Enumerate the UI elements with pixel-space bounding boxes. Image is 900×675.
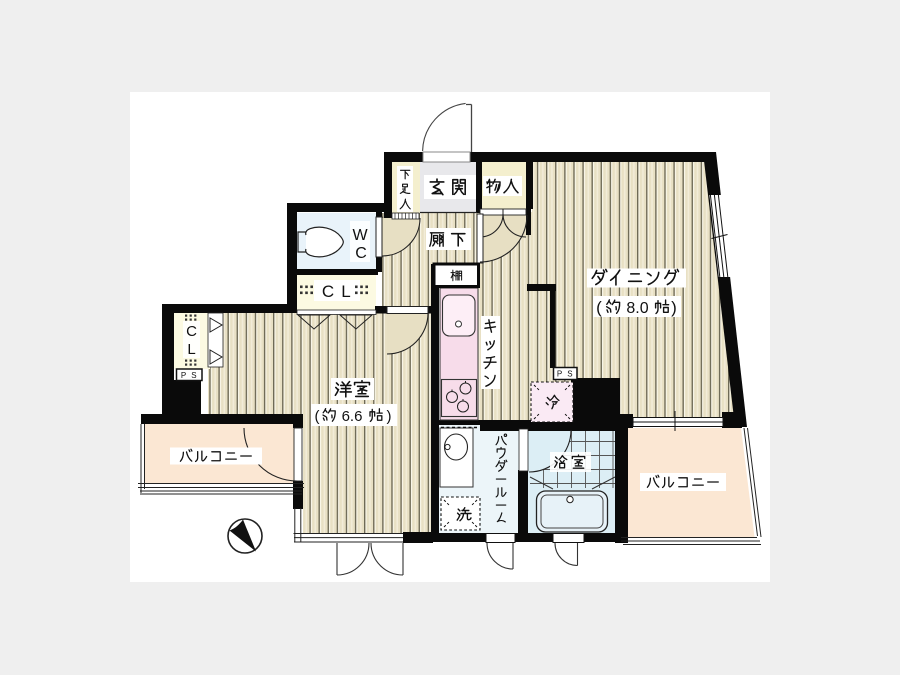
svg-text:P S: P S [557,370,574,379]
svg-text:C: C [355,245,367,262]
svg-text:8.0: 8.0 [626,300,648,317]
svg-text:C: C [186,323,197,340]
svg-text:L: L [341,282,350,301]
svg-text:W: W [352,227,368,244]
svg-text:(: ( [315,408,320,425]
svg-text:(: ( [596,298,602,317]
svg-text:): ) [387,408,392,425]
svg-text:P S: P S [181,371,198,380]
svg-text:6.6: 6.6 [342,408,363,425]
svg-text:L: L [187,341,195,358]
svg-text:C: C [322,282,334,301]
svg-text:): ) [671,298,677,317]
